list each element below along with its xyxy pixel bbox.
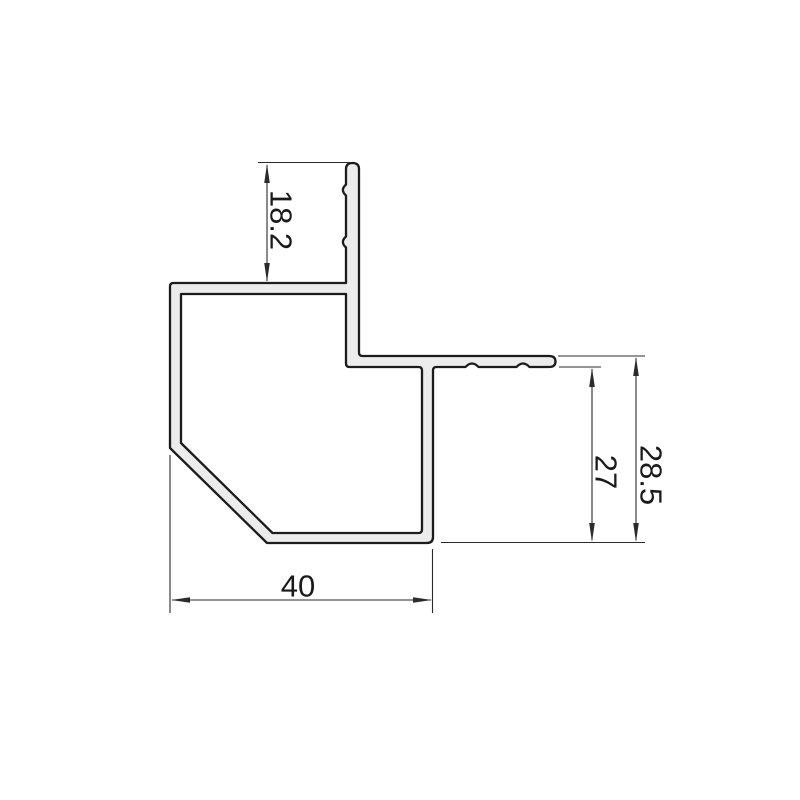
arrowhead-right-icon (413, 597, 432, 603)
profile-outline (170, 163, 556, 543)
dim-label-base-width: 40 (281, 571, 315, 602)
arrowhead-down-icon (589, 523, 595, 542)
dimension-28-5-lines (441, 356, 645, 543)
arrowhead-left-icon (171, 597, 190, 603)
arrowhead-up-icon (589, 368, 595, 387)
arrowhead-up-icon (264, 164, 270, 183)
cad-canvas: 18.2 27 28.5 40 (0, 0, 800, 800)
arrowhead-down-icon (264, 263, 270, 282)
dim-label-flange-to-base-inner: 27 (591, 455, 622, 489)
profile-drawing (0, 0, 800, 800)
arrowhead-down-icon (633, 523, 639, 542)
dim-label-flange-to-base-outer: 28.5 (636, 445, 667, 505)
arrowhead-up-icon (633, 357, 639, 376)
dim-label-fin-height: 18.2 (266, 190, 297, 250)
dimension-flange-to-base-outer (441, 356, 645, 543)
dimension-27-lines (559, 367, 601, 540)
